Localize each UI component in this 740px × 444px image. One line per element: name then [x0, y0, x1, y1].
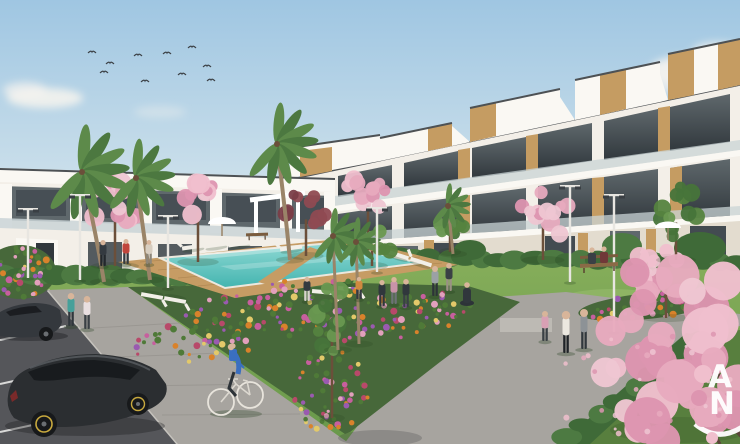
person-shadow	[376, 305, 387, 309]
person-head	[68, 293, 75, 300]
flower	[436, 312, 439, 315]
flower	[209, 354, 215, 360]
person-leg	[100, 254, 102, 266]
person-leg	[123, 253, 125, 265]
flower	[292, 398, 297, 403]
flower	[35, 254, 41, 260]
flower	[320, 388, 325, 393]
person-leg	[88, 314, 90, 329]
flower	[431, 301, 438, 308]
flower	[234, 331, 241, 338]
lamp-head	[69, 196, 75, 199]
flower	[22, 267, 26, 271]
flower	[248, 300, 254, 306]
petal	[644, 352, 650, 358]
lamp-head	[85, 196, 91, 199]
flower	[207, 298, 212, 303]
flower	[346, 315, 352, 321]
flower	[142, 340, 146, 344]
flower	[134, 344, 140, 350]
lamp-head	[575, 187, 581, 190]
petal	[650, 349, 656, 355]
person-leg	[403, 294, 405, 307]
flower	[207, 339, 212, 344]
petal	[592, 369, 597, 374]
flower	[462, 310, 466, 314]
flower	[282, 279, 287, 284]
flower	[235, 294, 238, 297]
tree-foliage	[524, 206, 536, 218]
flower	[265, 295, 270, 300]
petal	[586, 353, 591, 358]
blossom-foliage	[679, 278, 706, 305]
person-torso	[304, 281, 311, 291]
flower	[21, 294, 27, 300]
blossom-foliage	[620, 258, 649, 287]
flower	[360, 314, 366, 320]
flower	[657, 305, 663, 311]
palm-crown	[445, 203, 451, 209]
flower	[280, 327, 283, 330]
flower	[35, 266, 39, 270]
person-torso	[581, 315, 588, 332]
flower	[319, 355, 324, 360]
petal	[612, 361, 617, 366]
flower	[307, 355, 313, 361]
person-head	[305, 277, 310, 282]
person-leg	[127, 253, 129, 265]
flower	[32, 249, 37, 254]
person-leg	[360, 289, 362, 299]
flower	[226, 313, 231, 318]
flower	[188, 353, 191, 356]
palm-crown	[79, 169, 85, 175]
flower	[310, 295, 314, 299]
flower	[273, 299, 279, 305]
flower	[342, 382, 348, 388]
lamp-head	[619, 196, 625, 199]
flower	[390, 308, 397, 315]
flower	[291, 293, 298, 300]
flower	[438, 305, 441, 308]
flower	[16, 287, 21, 292]
flower	[40, 283, 44, 287]
flower	[214, 339, 220, 345]
person-torso	[84, 301, 91, 315]
flower	[383, 324, 390, 331]
person-leg	[104, 254, 106, 266]
petal	[634, 387, 639, 392]
blossom-foliage	[630, 289, 657, 316]
flower	[31, 292, 35, 296]
flower	[206, 333, 212, 339]
flower	[221, 296, 226, 301]
flower	[614, 296, 620, 302]
person-shadow	[557, 352, 575, 356]
flower	[158, 332, 162, 336]
flower	[278, 321, 282, 325]
flower	[153, 332, 158, 337]
flower	[184, 313, 188, 317]
person-leg	[84, 314, 86, 329]
person-torso	[356, 281, 363, 290]
flower	[239, 321, 244, 326]
lamp-pole	[376, 209, 378, 272]
flower	[432, 308, 436, 312]
flower	[415, 330, 419, 334]
tree-foliage	[379, 185, 390, 196]
flower	[236, 336, 241, 341]
flower	[399, 336, 403, 340]
flower	[291, 284, 295, 288]
person-shadow	[443, 290, 455, 294]
person-leg	[304, 290, 306, 301]
lamp-head	[382, 209, 388, 212]
flower	[301, 400, 305, 404]
tree-foliage	[289, 190, 299, 200]
flower	[301, 321, 305, 325]
flower	[434, 318, 439, 323]
person-head	[84, 296, 91, 303]
petal	[609, 338, 613, 342]
person-shadow	[575, 348, 593, 352]
petal	[704, 404, 708, 408]
wood-panel	[668, 49, 694, 100]
flower	[257, 295, 263, 301]
flower	[267, 306, 271, 310]
flower	[310, 394, 314, 398]
person-leg	[308, 290, 310, 301]
flower	[349, 420, 354, 425]
flower	[356, 362, 361, 367]
petal	[613, 412, 619, 418]
lamp-head	[157, 217, 163, 220]
lamp-head	[173, 217, 179, 220]
flower	[198, 355, 201, 358]
person-leg	[432, 282, 434, 296]
flower	[36, 260, 41, 265]
flower	[212, 317, 218, 323]
flower	[367, 301, 370, 304]
palm-crown	[330, 233, 336, 239]
tree-foliage	[182, 205, 202, 225]
petal	[689, 350, 695, 356]
flower	[347, 397, 353, 403]
person-leg	[391, 292, 393, 304]
petal	[650, 426, 656, 432]
flower	[17, 279, 24, 286]
petal	[667, 418, 673, 424]
blossom-foliage	[596, 316, 626, 346]
flower	[193, 325, 198, 330]
person-leg	[546, 327, 548, 341]
flower	[345, 279, 351, 285]
flower	[591, 315, 596, 320]
flower	[14, 246, 19, 251]
parked-car-sedan	[0, 303, 68, 341]
blossom-foliage	[624, 397, 670, 443]
flower	[314, 373, 319, 378]
tree-foliage	[681, 206, 697, 222]
flower	[206, 329, 209, 332]
flower	[38, 273, 43, 278]
flower	[214, 350, 219, 355]
watermark-letter-n: N	[709, 386, 735, 422]
flower	[596, 308, 600, 312]
person-shadow	[144, 263, 155, 267]
flower	[309, 424, 313, 428]
flower	[187, 359, 191, 363]
flower	[348, 336, 352, 340]
person-torso	[391, 281, 398, 292]
flower	[393, 318, 397, 322]
petal	[644, 429, 650, 435]
flower	[290, 328, 294, 332]
flower	[2, 287, 7, 292]
flower	[144, 333, 149, 338]
flower	[219, 321, 225, 327]
flower	[344, 403, 350, 409]
flower	[445, 312, 449, 316]
flower	[247, 316, 253, 322]
person-torso	[432, 271, 439, 284]
flower	[30, 267, 35, 272]
flower	[299, 407, 304, 412]
petal	[657, 411, 663, 417]
petal	[685, 345, 688, 348]
person-torso	[146, 244, 153, 254]
flower	[154, 337, 161, 344]
lamp-pole	[27, 210, 29, 278]
flower	[414, 300, 420, 306]
petal	[563, 361, 567, 365]
flower	[349, 392, 354, 397]
person-shadow	[538, 340, 551, 344]
flower	[327, 410, 330, 413]
petal	[638, 378, 642, 382]
person-head	[100, 240, 105, 245]
hedge-bush	[569, 418, 595, 431]
person-leg	[383, 294, 385, 306]
flower	[425, 316, 429, 320]
flower	[230, 339, 235, 344]
person-shadow	[400, 306, 412, 310]
flower	[324, 370, 330, 376]
petal	[718, 424, 722, 428]
petal	[711, 332, 716, 337]
flower	[33, 274, 38, 279]
flower	[299, 327, 303, 331]
palm-crown	[353, 239, 359, 245]
tree-foliage	[551, 225, 568, 242]
person-head	[391, 277, 396, 282]
lamp-head	[559, 187, 565, 190]
tree-foliage	[349, 175, 365, 191]
flower	[202, 342, 206, 346]
flower	[261, 320, 266, 325]
flower	[301, 371, 305, 375]
bench-sitter	[601, 246, 606, 251]
wood-panel	[718, 39, 740, 90]
flower	[343, 387, 348, 392]
flower	[271, 283, 274, 286]
blossom-foliage	[682, 307, 729, 354]
flower	[600, 310, 604, 314]
flower	[276, 316, 279, 319]
person-shadow	[64, 325, 79, 329]
flower	[279, 293, 283, 297]
flower	[361, 383, 367, 389]
person-shadow	[80, 328, 95, 332]
flower	[323, 405, 326, 408]
person-head	[446, 263, 452, 269]
flower	[173, 343, 179, 349]
flower	[194, 342, 201, 349]
flower	[247, 307, 250, 310]
person-leg	[379, 294, 381, 306]
flower	[270, 311, 276, 317]
flower	[181, 336, 186, 341]
person-shadow	[97, 265, 108, 269]
tree-foliage	[365, 182, 379, 196]
lamp-pole	[569, 187, 571, 282]
flower	[446, 323, 451, 328]
wood-panel	[600, 69, 626, 115]
lamp-head	[366, 209, 372, 212]
person-head	[357, 277, 361, 281]
flower	[170, 326, 177, 333]
tree-foliage	[333, 315, 345, 327]
flower	[316, 362, 320, 366]
tree-foliage	[372, 199, 387, 214]
flower	[607, 307, 611, 311]
flower	[263, 328, 266, 331]
person-leg	[68, 311, 70, 326]
person-leg	[150, 253, 152, 264]
person-head	[432, 266, 438, 272]
flower	[286, 301, 293, 308]
petal	[614, 428, 617, 431]
person-head	[542, 311, 548, 317]
flower	[240, 309, 244, 313]
flower	[287, 333, 293, 339]
lamp-head	[33, 210, 39, 213]
flower	[336, 425, 341, 430]
person-shadow	[302, 300, 313, 304]
person-torso	[100, 244, 107, 255]
flower	[323, 378, 329, 384]
tree-foliage	[308, 217, 320, 229]
flower	[199, 307, 203, 311]
person-torso	[123, 243, 130, 254]
flower	[243, 338, 250, 345]
person-torso	[563, 318, 570, 336]
flower	[14, 255, 18, 259]
person-torso	[403, 283, 410, 295]
person-head	[124, 239, 129, 244]
flower	[20, 246, 25, 251]
person-leg	[146, 253, 148, 264]
flower	[178, 350, 184, 356]
person-torso	[542, 316, 549, 329]
flower	[136, 338, 141, 343]
palm-crown	[274, 141, 280, 147]
flower	[402, 326, 406, 330]
flower	[298, 290, 305, 297]
person-shadow	[388, 303, 400, 307]
flower	[16, 273, 21, 278]
flower	[303, 417, 308, 422]
person-leg	[395, 292, 397, 304]
flower	[354, 370, 360, 376]
flower	[228, 325, 232, 329]
tree-foliage	[682, 184, 700, 202]
person-shadow	[428, 295, 441, 299]
flower	[418, 323, 425, 330]
flower	[222, 328, 225, 331]
petal	[581, 355, 586, 360]
tree-foliage	[559, 198, 575, 214]
person-torso	[379, 284, 386, 295]
lamp-pole	[79, 196, 81, 280]
tree-foliage	[670, 188, 684, 202]
flower	[327, 424, 333, 430]
person-leg	[436, 282, 438, 296]
flower	[272, 305, 278, 311]
tree-foliage	[321, 283, 333, 295]
flower	[391, 326, 395, 330]
flower	[378, 330, 384, 336]
tree-foliage	[313, 326, 324, 337]
person-head	[403, 279, 409, 285]
flower	[246, 348, 251, 353]
flower	[209, 344, 212, 347]
flower	[271, 288, 277, 294]
person-leg	[356, 289, 358, 299]
flower	[351, 315, 356, 320]
flower	[398, 316, 405, 323]
architectural-render: A N	[0, 0, 740, 444]
bench-sitter	[589, 247, 594, 252]
tree-foliage	[318, 299, 332, 313]
person-leg	[567, 334, 569, 353]
flower	[417, 309, 423, 315]
flower	[442, 302, 448, 308]
flower	[222, 312, 227, 317]
flower	[381, 317, 386, 322]
petal	[599, 408, 604, 413]
lamp-head	[17, 210, 23, 213]
tree-foliage	[539, 203, 556, 220]
flower	[46, 264, 52, 270]
flower	[304, 409, 310, 415]
flower	[454, 315, 457, 318]
palm-crown	[133, 175, 139, 181]
flower	[366, 396, 370, 400]
person-shadow	[121, 263, 132, 267]
person-head	[147, 240, 152, 245]
flower	[136, 353, 139, 356]
flower	[421, 294, 426, 299]
flower	[336, 356, 342, 362]
person-head	[379, 280, 384, 285]
person-head	[580, 309, 588, 317]
flower	[451, 301, 457, 307]
person-leg	[542, 327, 544, 341]
person-leg	[72, 311, 74, 326]
flower	[0, 270, 6, 276]
flower	[6, 276, 13, 283]
